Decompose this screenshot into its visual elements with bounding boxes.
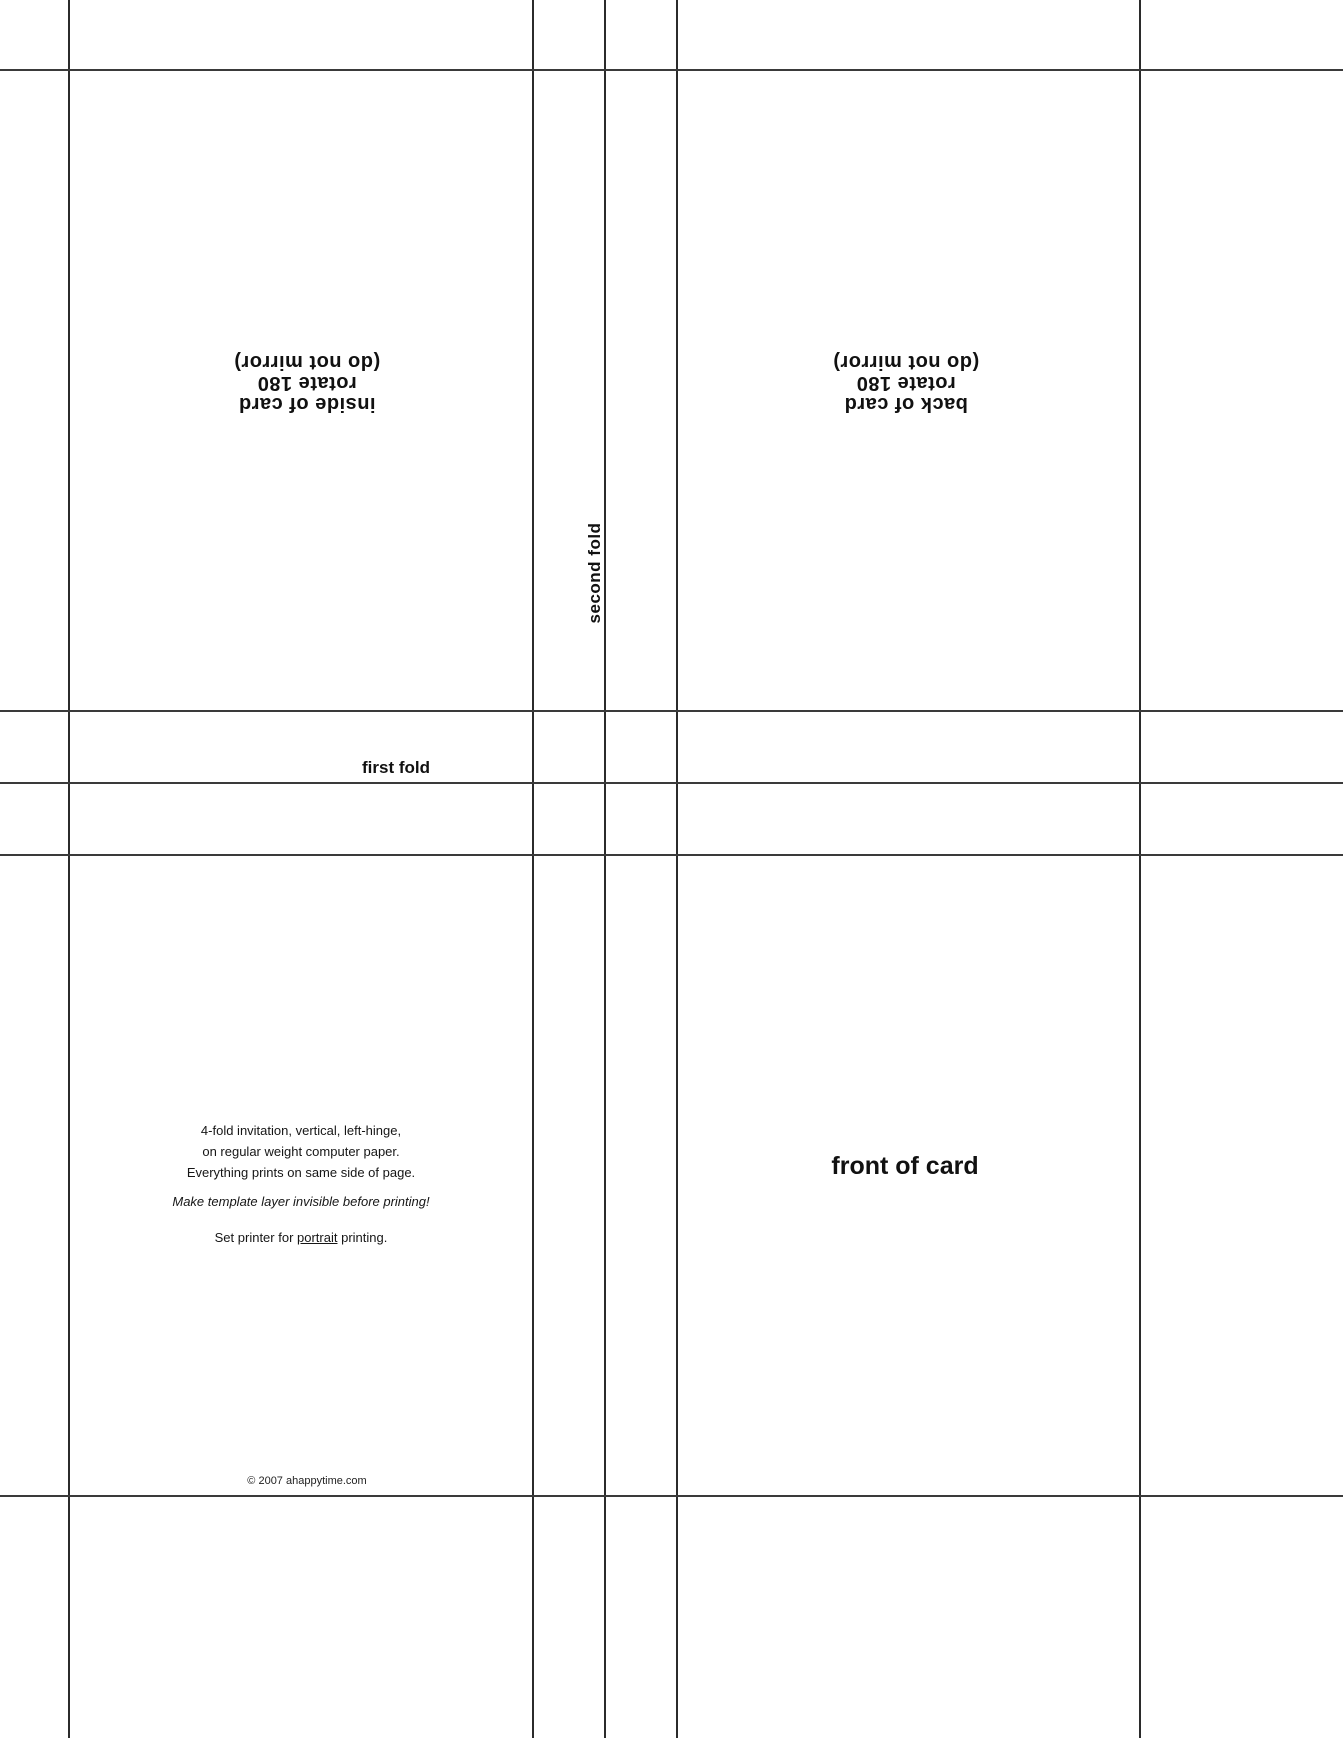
instructions-line2: on regular weight computer paper.: [101, 1141, 501, 1162]
guide-vline-first-fold: [532, 0, 534, 1738]
guide-hline-bottom: [0, 1495, 1343, 1497]
guide-vline-center-left: [604, 0, 606, 1738]
printer-line-suffix: printing.: [337, 1230, 387, 1245]
guide-hline-upper-fold: [0, 710, 1343, 712]
front-of-card-label: front of card: [755, 1152, 1055, 1181]
second-fold-label: second fold: [585, 463, 605, 683]
guide-vline-right-margin: [1139, 0, 1141, 1738]
first-fold-label: first fold: [296, 758, 496, 778]
instructions-printer-line: Set printer for portrait printing.: [101, 1227, 501, 1248]
inside-of-card-line2: rotate 180: [197, 372, 417, 393]
copyright-text: © 2007 ahappytime.com: [207, 1475, 407, 1487]
inside-of-card-line3: (do not mirror): [197, 351, 417, 372]
back-of-card-line3: (do not mirror): [796, 351, 1016, 372]
guide-vline-center-right: [676, 0, 678, 1738]
print-template-page: inside of card rotate 180 (do not mirror…: [0, 0, 1343, 1738]
instructions: 4-fold invitation, vertical, left-hinge,…: [101, 1120, 501, 1248]
back-of-card-label: back of card rotate 180 (do not mirror): [796, 351, 1016, 414]
back-of-card-line2: rotate 180: [796, 372, 1016, 393]
printer-line-prefix: Set printer for: [215, 1230, 297, 1245]
printer-line-emphasis: portrait: [297, 1230, 337, 1245]
instructions-line1: 4-fold invitation, vertical, left-hinge,: [101, 1120, 501, 1141]
guide-hline-middle: [0, 782, 1343, 784]
guide-hline-lower-fold: [0, 854, 1343, 856]
guide-vline-left-margin: [68, 0, 70, 1738]
inside-of-card-label: inside of card rotate 180 (do not mirror…: [197, 351, 417, 414]
instructions-note: Make template layer invisible before pri…: [101, 1191, 501, 1212]
back-of-card-line1: back of card: [796, 393, 1016, 414]
inside-of-card-line1: inside of card: [197, 393, 417, 414]
instructions-line3: Everything prints on same side of page.: [101, 1162, 501, 1183]
guide-hline-top: [0, 69, 1343, 71]
